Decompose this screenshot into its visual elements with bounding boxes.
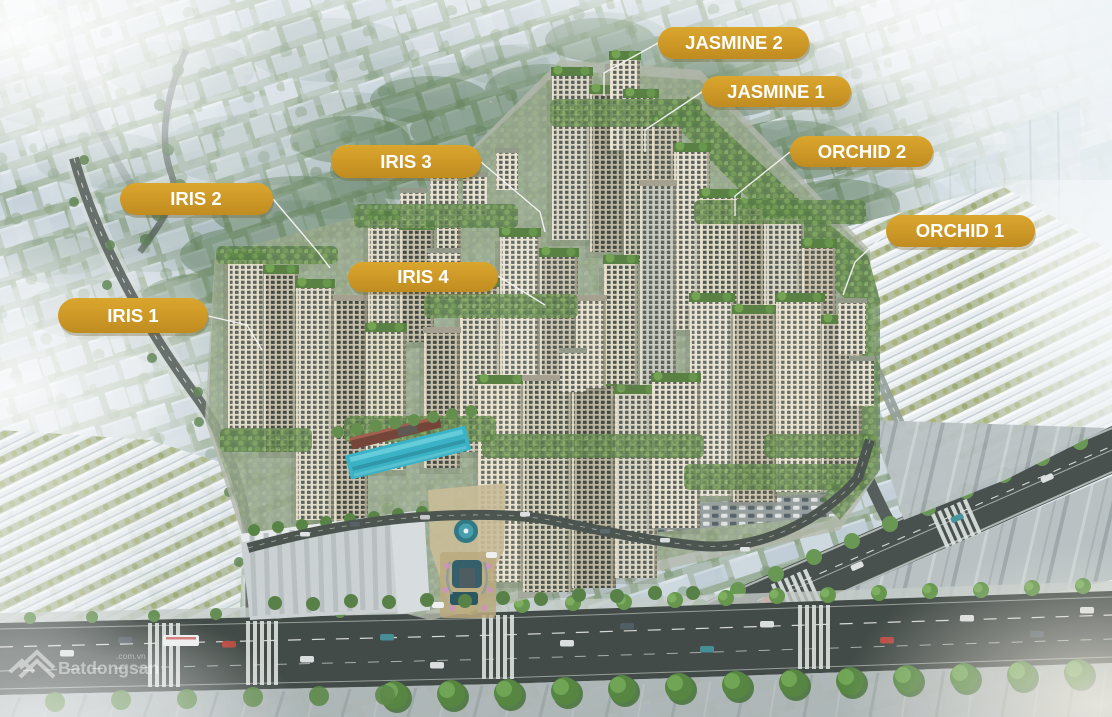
svg-text:.com.vn: .com.vn (116, 651, 146, 661)
svg-text:Batdongsan: Batdongsan (58, 658, 159, 678)
svg-text:IRIS 2: IRIS 2 (170, 188, 221, 209)
svg-text:IRIS 4: IRIS 4 (397, 266, 449, 287)
svg-text:ORCHID 1: ORCHID 1 (916, 220, 1004, 241)
svg-text:JASMINE 1: JASMINE 1 (727, 81, 825, 102)
svg-text:JASMINE 2: JASMINE 2 (685, 32, 783, 53)
svg-text:IRIS 3: IRIS 3 (380, 151, 431, 172)
svg-text:ORCHID 2: ORCHID 2 (818, 141, 906, 162)
svg-text:IRIS 1: IRIS 1 (107, 305, 158, 326)
